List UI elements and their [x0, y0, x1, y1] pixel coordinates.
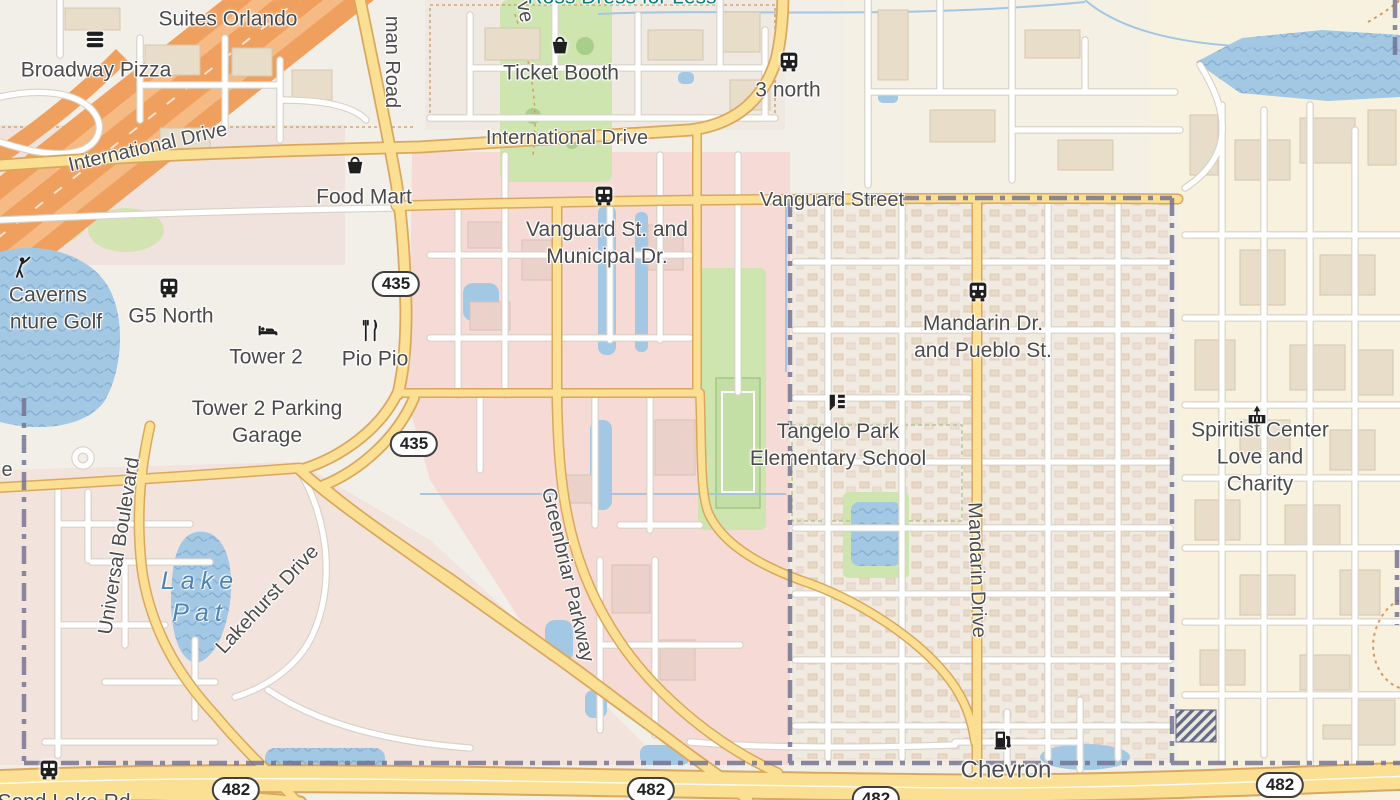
route-shield-482-c: 482 — [852, 786, 900, 800]
route-shield-435-b: 435 — [390, 431, 438, 457]
route-shield-482-d: 482 — [1256, 772, 1304, 798]
route-shield-482-a: 482 — [212, 777, 260, 800]
route-shield-482-b: 482 — [627, 777, 675, 800]
map-tiles — [0, 0, 1400, 800]
map-canvas[interactable]: Homewood Suites Orlando Ross Dress for L… — [0, 0, 1400, 800]
route-shield-435-a: 435 — [372, 271, 420, 297]
